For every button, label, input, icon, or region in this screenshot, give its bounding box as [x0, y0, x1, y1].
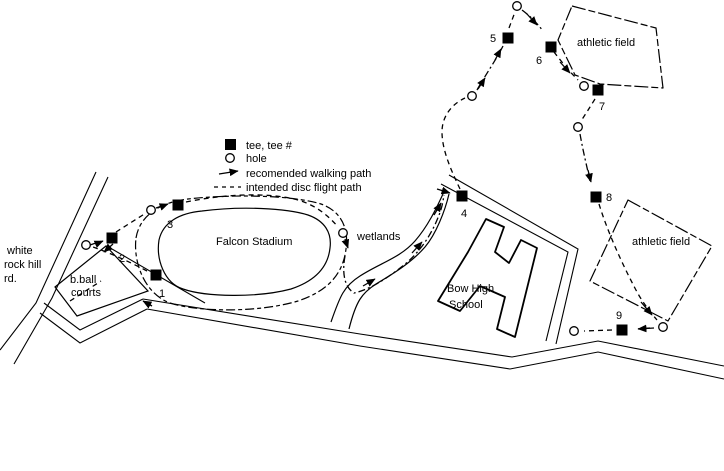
hole-2-marker [147, 206, 156, 215]
tee-1-marker [151, 270, 162, 281]
tee-5-marker [503, 33, 514, 44]
bball-courts-outline [55, 246, 148, 316]
bball-courts-label-2: courts [71, 287, 101, 299]
course-map-canvas: 123456789 whiterock hillrd.b.ballcourtsF… [0, 0, 724, 471]
road-name-line-2: rock hill [4, 259, 41, 271]
tee-8-number: 8 [606, 192, 612, 204]
disc-golf-course-map: 123456789 whiterock hillrd.b.ballcourtsF… [0, 0, 724, 471]
bball-courts-label-1: b.ball [70, 274, 96, 286]
road-name-line-3: rd. [4, 273, 17, 285]
disc-flight-path [116, 213, 146, 232]
tee-8-marker [591, 192, 602, 203]
hole-6-marker [580, 82, 589, 91]
athletic-field-2-label: athletic field [632, 236, 690, 248]
walking-path-arrow [437, 189, 450, 193]
tee-5-number: 5 [490, 33, 496, 45]
falcon-stadium-label: Falcon Stadium [216, 236, 292, 248]
athletic-field-2-outline [590, 200, 712, 321]
tee-1-number: 1 [159, 288, 165, 300]
school-building-outline [438, 219, 537, 337]
walking-path-arrow [143, 301, 152, 306]
roads-layer [0, 172, 724, 379]
legend-item-label: intended disc flight path [246, 182, 362, 194]
legend-tee-icon [225, 139, 236, 150]
outlines-layer [55, 6, 712, 337]
legend-item-label: recomended walking path [246, 168, 371, 180]
disc-flight-path [554, 52, 578, 80]
tee-6-number: 6 [536, 55, 542, 67]
disc-flight-path [581, 99, 595, 121]
tee-3-number: 3 [167, 219, 173, 231]
wetlands-label: wetlands [356, 231, 401, 243]
hole-7-marker [574, 123, 583, 132]
tee-9-number: 9 [616, 310, 622, 322]
wetlands-path-edge-left [331, 194, 443, 322]
tee-2-marker [107, 233, 118, 244]
walking-path-arrow [638, 328, 654, 329]
stadium-inner-outline [158, 208, 330, 295]
disc-flight-path [442, 98, 465, 189]
road-line [147, 309, 724, 379]
hole-1-marker [82, 241, 91, 250]
disc-flight-path [186, 195, 338, 227]
walking-path-arrow [495, 49, 501, 60]
tee-9-marker [617, 325, 628, 336]
disc-flight-path [584, 330, 612, 331]
legend-walk-arrow-icon [219, 171, 238, 174]
stadium-outer-outline [136, 196, 347, 310]
legend-item-label: tee, tee # [246, 140, 293, 152]
walking-path-arrow [104, 244, 113, 252]
disc-flight-path [599, 204, 657, 320]
hole-8-marker [659, 323, 668, 332]
walking-path [344, 195, 444, 293]
walking-path-arrow [363, 279, 375, 286]
road-line [143, 299, 724, 366]
legend: tee, tee #holerecomended walking pathint… [214, 139, 371, 194]
hole-9-marker [570, 327, 579, 336]
tee-7-number: 7 [599, 101, 605, 113]
school-label-2: School [449, 299, 483, 311]
tee-6-marker [546, 42, 557, 53]
tee-4-marker [457, 191, 468, 202]
athletic-field-1-label: athletic field [577, 37, 635, 49]
tee-7-marker [593, 85, 604, 96]
school-label-1: Bow High [447, 283, 494, 295]
walking-path-arrow [527, 14, 537, 25]
tee-4-number: 4 [461, 208, 467, 220]
road-name-line-1: white [6, 245, 33, 257]
tee-3-marker [173, 200, 184, 211]
walking-path-arrow [560, 62, 570, 73]
road-line [44, 299, 143, 330]
legend-hole-icon [226, 154, 235, 163]
walking-path-arrow [478, 78, 485, 89]
hole-4-marker [468, 92, 477, 101]
road-line [449, 175, 578, 344]
hole-5-marker [513, 2, 522, 11]
legend-item-label: hole [246, 153, 267, 165]
disc-flight-path [509, 12, 515, 28]
hole-3-marker [339, 229, 348, 238]
road-line [40, 309, 147, 343]
tee-2-number: 2 [119, 253, 125, 265]
